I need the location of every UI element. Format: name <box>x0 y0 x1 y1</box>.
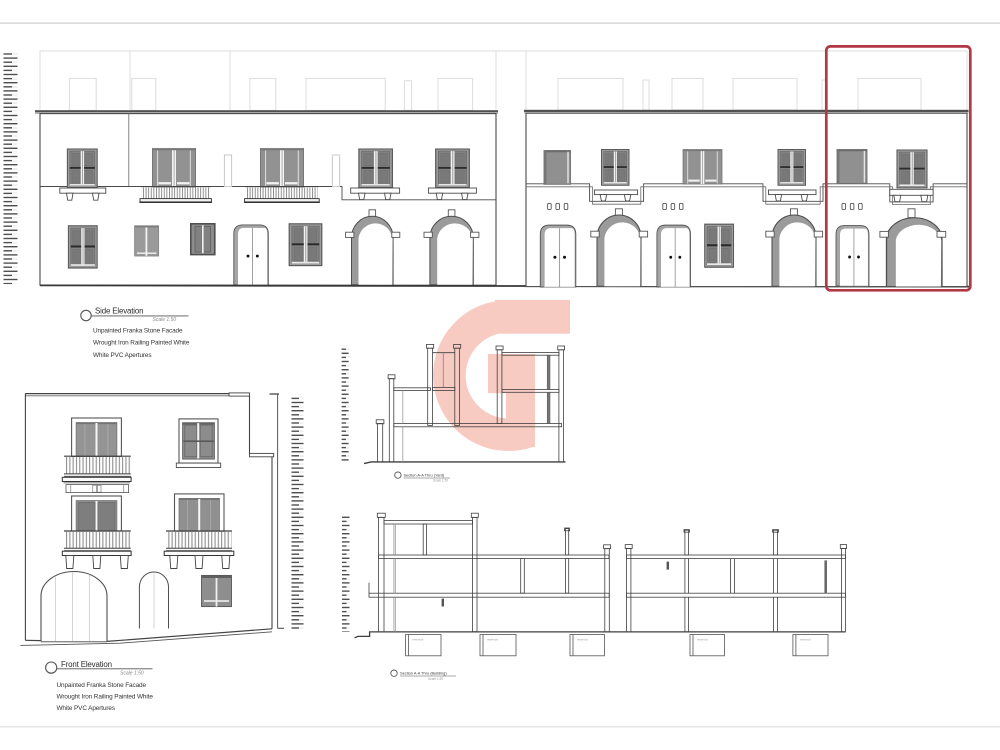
svg-text:Scale 1:50: Scale 1:50 <box>428 677 443 681</box>
svg-text:reservoir: reservoir <box>487 638 498 642</box>
svg-text:Scale 1:50: Scale 1:50 <box>120 671 144 677</box>
svg-text:Section A-A Thru (Building): Section A-A Thru (Building) <box>400 671 447 676</box>
svg-text:Wrought Iron Railing Painted W: Wrought Iron Railing Painted White <box>93 340 190 347</box>
svg-text:Unpainted Franka Stone Facade: Unpainted Franka Stone Facade <box>93 327 183 334</box>
svg-text:Section A-A Thru (Yard): Section A-A Thru (Yard) <box>404 473 445 478</box>
svg-text:reservoir: reservoir <box>577 638 588 642</box>
svg-text:Unpainted Franka Stone Facade: Unpainted Franka Stone Facade <box>57 682 147 689</box>
svg-text:reservoir: reservoir <box>413 638 424 642</box>
svg-text:Side Elevation: Side Elevation <box>95 307 143 316</box>
svg-text:reservoir: reservoir <box>800 638 811 642</box>
svg-text:White PVC Apertures: White PVC Apertures <box>93 352 151 359</box>
svg-text:Wrought Iron Railing Painted W: Wrought Iron Railing Painted White <box>57 694 154 701</box>
svg-text:reservoir: reservoir <box>697 638 708 642</box>
svg-text:White PVC Apertures: White PVC Apertures <box>57 705 115 712</box>
svg-text:Scale 1:50: Scale 1:50 <box>433 478 448 482</box>
svg-text:Scale 1:50: Scale 1:50 <box>153 317 177 323</box>
svg-text:Front Elevation: Front Elevation <box>61 660 112 669</box>
